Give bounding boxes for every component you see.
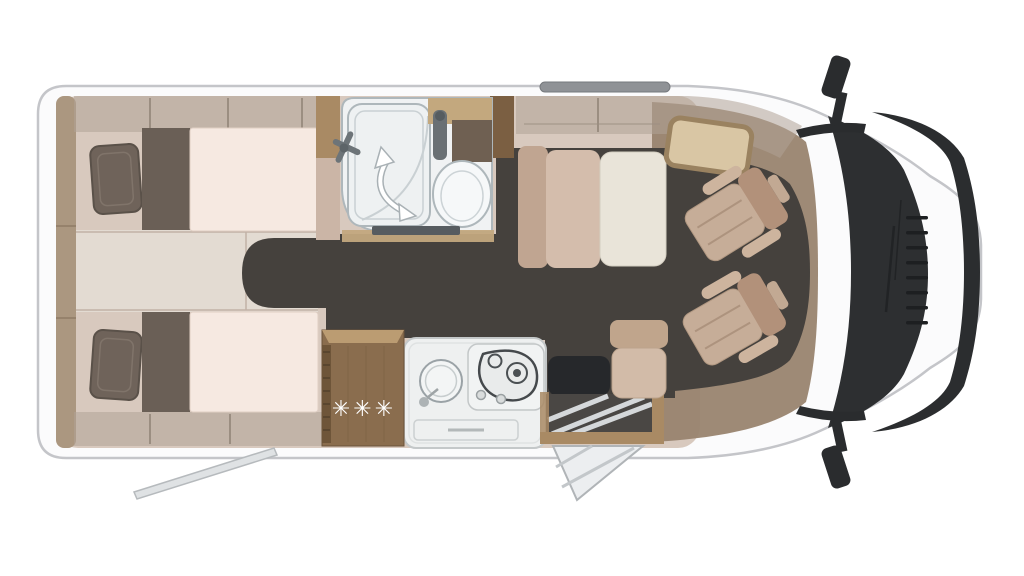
bed-bottom-foot-cushion bbox=[142, 312, 190, 412]
wardrobe-panel bbox=[316, 158, 340, 240]
walkway-tongue bbox=[242, 238, 336, 308]
entry-mat bbox=[548, 356, 610, 396]
entry-jamb-left bbox=[540, 392, 549, 436]
motorhome-floorplan: ✳✳✳ bbox=[0, 0, 1024, 576]
bathroom-cabinet bbox=[452, 120, 492, 162]
fridge-top-face bbox=[322, 330, 404, 343]
entry-door-open bbox=[553, 446, 643, 500]
freezer-rating-stars: ✳✳✳ bbox=[332, 397, 396, 422]
dinette-seat-cream bbox=[600, 152, 666, 266]
fridge-cabinet: ✳✳✳ bbox=[322, 330, 404, 446]
pillow-top bbox=[90, 143, 143, 214]
kitchen bbox=[404, 338, 546, 448]
bed-top-mattress bbox=[190, 128, 318, 231]
awning-rail bbox=[540, 82, 670, 92]
bed-bottom-mattress bbox=[190, 312, 318, 412]
lower-cabinets-rear bbox=[74, 412, 332, 446]
fridge-body bbox=[322, 330, 404, 446]
walkway-center bbox=[326, 234, 512, 338]
side-seat-backrest bbox=[610, 320, 668, 348]
bed-top-foot-cushion bbox=[142, 128, 190, 230]
wardrobe-wood-top bbox=[316, 96, 340, 158]
pillow-bottom bbox=[90, 329, 143, 400]
entry-jamb-right bbox=[652, 392, 664, 444]
mirror-blade bbox=[820, 54, 852, 100]
dinette-table bbox=[665, 117, 753, 176]
bathroom-sliding-door bbox=[372, 226, 460, 235]
burner-large-center bbox=[513, 369, 521, 377]
cooktop-knob-right bbox=[497, 395, 506, 404]
dinette-seat-blush bbox=[546, 150, 600, 268]
floorplan-canvas: ✳✳✳ bbox=[0, 0, 1024, 576]
dinette-backrest bbox=[518, 146, 548, 268]
overhead-lockers-rear bbox=[74, 96, 336, 132]
side-seat-cushion bbox=[612, 348, 666, 398]
cooktop-knob-left bbox=[477, 391, 486, 400]
fridge-vent bbox=[322, 345, 331, 443]
entry-threshold-wood bbox=[540, 432, 664, 444]
basin-tap-head bbox=[435, 111, 445, 121]
partition-wood-column bbox=[490, 96, 514, 158]
mirror-blade bbox=[820, 444, 852, 490]
rear-wall-wood bbox=[56, 96, 76, 448]
side-seat bbox=[610, 320, 668, 398]
kitchen-sink bbox=[420, 360, 462, 402]
